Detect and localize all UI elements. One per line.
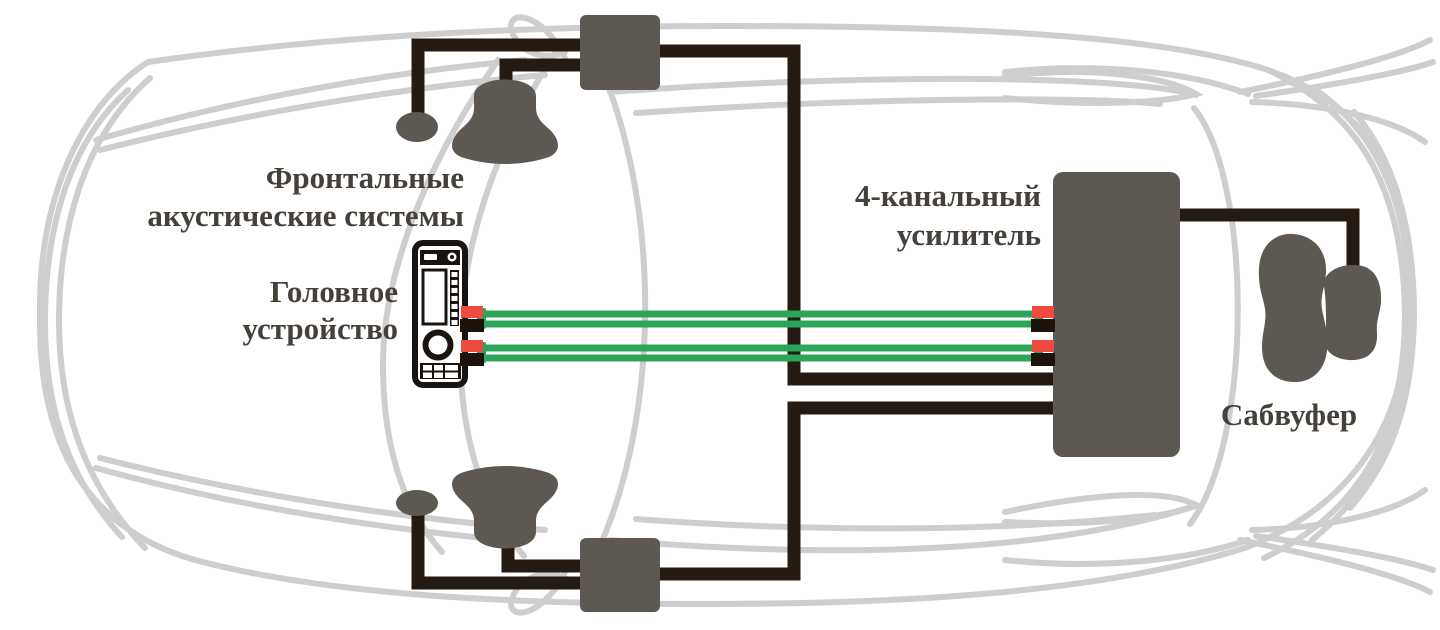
roof-line-top bbox=[610, 79, 1196, 95]
rear-quarter-sliver-bottom bbox=[1005, 495, 1196, 523]
head-unit-eject-dot bbox=[450, 255, 454, 259]
hood-line-top bbox=[96, 60, 525, 140]
rca-connector-red-amp-2 bbox=[1032, 340, 1054, 352]
tweeter-lower bbox=[396, 490, 438, 516]
head-unit bbox=[415, 243, 465, 385]
amplifier-box bbox=[1053, 172, 1180, 457]
diagram-canvas: Фронтальные акустические системы Головно… bbox=[0, 0, 1440, 630]
rca-connector-black-amp-2 bbox=[1031, 353, 1055, 366]
label-amplifier-line1: 4-канальный bbox=[855, 178, 1041, 213]
label-subwoofer: Сабвуфер bbox=[1221, 397, 1357, 432]
rca-connector-black-hu-1 bbox=[460, 319, 484, 332]
side-mirror-top bbox=[511, 17, 565, 58]
crossover-lower bbox=[580, 538, 660, 612]
head-unit-small-display bbox=[424, 254, 437, 260]
subwoofer-magnet bbox=[1324, 265, 1381, 360]
rca-cable-1 bbox=[477, 308, 1043, 329]
subwoofer-cone bbox=[1259, 234, 1328, 382]
label-front-speakers-line2: акустические системы bbox=[147, 198, 464, 233]
rca-connector-red-hu-1 bbox=[461, 306, 483, 318]
rca-connector-red-hu-2 bbox=[461, 340, 483, 352]
subwoofer-speaker bbox=[1259, 234, 1381, 382]
rear-window-arc bbox=[1190, 108, 1238, 524]
rca-cable-2 bbox=[477, 342, 1043, 363]
tweeter-upper bbox=[396, 112, 438, 142]
car-audio-wiring-diagram: Фронтальные акустические системы Головно… bbox=[0, 0, 1440, 630]
head-unit-knob-center bbox=[429, 336, 448, 355]
head-unit-display bbox=[423, 270, 446, 324]
woofer-upper bbox=[452, 80, 558, 165]
rca-connector-black-amp-1 bbox=[1031, 319, 1055, 332]
label-head-unit-line2: устройство bbox=[242, 311, 398, 346]
label-front-speakers-line1: Фронтальные bbox=[266, 160, 464, 195]
label-amplifier-line2: усилитель bbox=[897, 217, 1041, 252]
label-head-unit-line1: Головное bbox=[270, 274, 398, 309]
rca-connector-black-hu-2 bbox=[460, 353, 484, 366]
rca-connector-red-amp-1 bbox=[1032, 306, 1054, 318]
crossover-upper bbox=[580, 15, 660, 90]
